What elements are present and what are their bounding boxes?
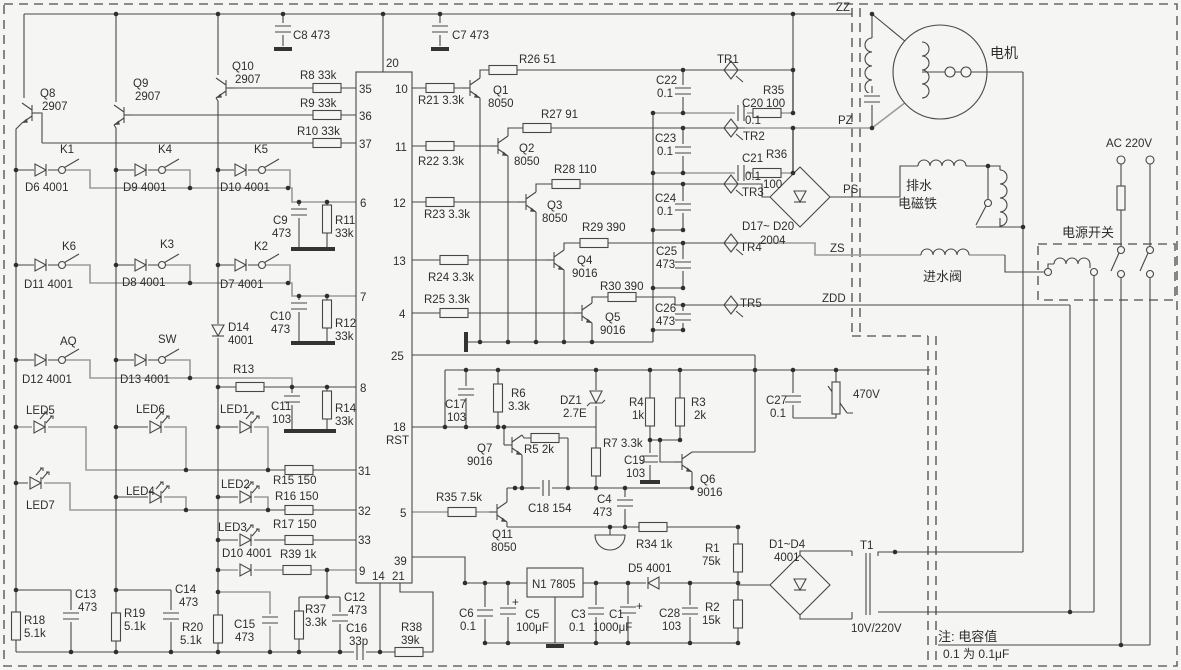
schematic-label: 9016 (572, 268, 598, 280)
schematic-label: 35 (359, 84, 372, 96)
schematic-label: K2 (254, 241, 268, 253)
schematic-label: + (512, 597, 519, 609)
schematic-label: 4001 (774, 552, 800, 564)
schematic-label: 2k (694, 410, 706, 422)
junction-dot (216, 168, 221, 173)
schematic-label: PS (843, 184, 859, 196)
transistor-q7 (504, 435, 522, 455)
schematic-label: K1 (60, 144, 74, 156)
junction-dot (651, 286, 656, 291)
schematic-label: C28 (659, 608, 680, 620)
schematic-label: LED7 (26, 500, 55, 512)
junction-dot (651, 171, 656, 176)
junction-dot (266, 468, 271, 473)
schematic-label: R37 (305, 604, 326, 616)
transistor-q1 (462, 78, 480, 98)
schematic-label: C22 (656, 75, 677, 87)
junction-dot (286, 186, 291, 191)
junction-dot (623, 525, 628, 530)
junction-dot (325, 200, 330, 205)
schematic-label: 13 (393, 256, 406, 268)
schematic-label: C8 473 (293, 30, 330, 42)
junction-dot (506, 641, 511, 646)
junction-dot (216, 590, 221, 595)
schematic-label: 6 (360, 198, 366, 210)
junction-dot (188, 376, 193, 381)
schematic-label: C12 (344, 592, 365, 604)
schematic-label: C24 (655, 193, 677, 205)
schematic-label: D14 (228, 322, 250, 334)
junction-dot (651, 328, 656, 333)
schematic-label: 470V (853, 389, 880, 401)
schematic-label: 10V/220V (851, 623, 902, 635)
junction-dot (681, 286, 686, 291)
schematic-label: C23 (655, 133, 676, 145)
schematic-label: D10 4001 (222, 548, 272, 560)
junction-dot (216, 568, 221, 573)
schematic-label: ZS (830, 243, 845, 255)
switch-sw (159, 349, 180, 364)
schematic-label: C9 (273, 215, 288, 227)
junction-dot (378, 650, 383, 655)
schematic-label: 4 (399, 309, 406, 321)
junction-dot (753, 368, 758, 373)
schematic-label: C16 (346, 623, 367, 635)
schematic-label: TR2 (743, 131, 765, 143)
schematic-label: K6 (62, 241, 76, 253)
schematic-label: 9 (359, 566, 365, 578)
schematic-label: 2907 (135, 91, 161, 103)
junction-dot (736, 641, 741, 646)
junction-dot (496, 368, 501, 373)
schematic-label: R15 150 (273, 475, 316, 487)
schematic-label: LED3 (218, 522, 247, 534)
schematic-label: D11 4001 (24, 279, 73, 291)
schematic-label: 39 (394, 556, 407, 568)
schematic-label: 电源开关 (1062, 225, 1114, 240)
junction-dot (14, 588, 19, 593)
schematic-label: C26 (655, 303, 676, 315)
schematic-label: Q5 (605, 312, 620, 324)
schematic-label: K5 (254, 144, 268, 156)
junction-dot (114, 12, 119, 17)
schematic-label: 0.1 (569, 622, 585, 634)
schematic-label: C15 (234, 619, 255, 631)
junction-dot (594, 368, 599, 373)
schematic-label: C13 (75, 589, 96, 601)
junction-dot (594, 581, 599, 586)
schematic-label: 8050 (542, 213, 568, 225)
junction-dot (286, 281, 291, 286)
schematic-label: R8 33k (300, 70, 337, 82)
schematic-label: 33p (349, 636, 368, 648)
schematic-label: 103 (447, 412, 466, 424)
switch-k4 (159, 159, 180, 174)
schematic-label: C20 (742, 98, 763, 110)
schematic-label: 1000μF (593, 622, 632, 634)
junction-dot (483, 581, 488, 586)
schematic-label: 2004 (760, 235, 786, 247)
schematic-label: 电磁铁 (898, 196, 937, 211)
schematic-label: 33k (335, 331, 354, 343)
schematic-label: R36 (766, 149, 787, 161)
junction-dot (791, 111, 796, 116)
junction-dot (184, 468, 189, 473)
schematic-label: 排水 (906, 178, 932, 193)
drain-solenoid-coil (918, 160, 966, 166)
buzzer (595, 535, 625, 550)
schematic-label: 电机 (990, 45, 1018, 61)
junction-dot (216, 495, 221, 500)
junction-dot (463, 581, 468, 586)
schematic-label: PZ (838, 115, 853, 127)
schematic-label: C19 (624, 455, 645, 467)
junction-dot (266, 508, 271, 513)
junction-dot (791, 126, 796, 131)
transistor-q6 (674, 452, 692, 472)
zener-dz1 (587, 390, 605, 406)
motor-start-winding (865, 38, 872, 94)
junction-dot (297, 650, 302, 655)
schematic-label: 31 (358, 466, 371, 478)
schematic-label: 103 (272, 414, 291, 426)
junction-dot (114, 650, 119, 655)
junction-dot (114, 588, 119, 593)
schematic-label: 36 (359, 111, 372, 123)
schematic-label: R22 3.3k (418, 156, 464, 168)
transistor-q4 (546, 250, 564, 270)
schematic-label: LED2 (221, 479, 250, 491)
junction-dot (14, 425, 19, 430)
schematic-label: Q7 (477, 443, 492, 455)
schematic-label: 14 (372, 571, 385, 583)
schematic-label: Q6 (700, 474, 715, 486)
schematic-label: Q11 (492, 529, 513, 541)
wires (16, 14, 1154, 652)
schematic-label: R18 (24, 615, 45, 627)
schematic-label: D7 4001 (220, 279, 263, 291)
schematic-label: C17 (445, 399, 466, 411)
schematic-label: 473 (348, 605, 367, 617)
schematic-label: 0.1 (770, 408, 786, 420)
schematic-label: 33 (358, 535, 371, 547)
schematic-label: Q10 (232, 61, 254, 73)
junction-dot (736, 525, 741, 530)
schematic-label: R39 1k (280, 549, 317, 561)
schematic-label: 9016 (697, 487, 723, 499)
schematic-label: TR1 (717, 54, 739, 66)
schematic-label: 7 (360, 292, 366, 304)
schematic-label: 103 (626, 468, 645, 480)
schematic-label: D10 4001 (220, 182, 270, 194)
fuse (1117, 186, 1125, 210)
junction-dot (114, 263, 119, 268)
junction-dot (188, 186, 193, 191)
junction-dot (483, 641, 488, 646)
schematic-label: R21 3.3k (418, 95, 464, 107)
schematic-label: 0.1 (745, 171, 761, 183)
schematic-label: 8050 (514, 156, 540, 168)
junction-dot (325, 294, 330, 299)
transistor-q9 (114, 105, 132, 125)
schematic-label: DZ1 (560, 395, 582, 407)
junction-dot (834, 368, 839, 373)
schematic-label: 103 (662, 621, 681, 633)
schematic-label: D8 4001 (122, 277, 165, 289)
junction-dot (791, 68, 796, 73)
junction-dot (534, 340, 539, 345)
schematic-label: 100 (766, 98, 785, 110)
schematic-label: RST (386, 435, 409, 447)
junction-dot (513, 486, 518, 491)
schematic-label: + (636, 601, 643, 613)
schematic-label: R20 (182, 622, 203, 634)
junction-dot (678, 368, 683, 373)
schematic-label: 25 (391, 351, 404, 363)
schematic-label: AC 220V (1106, 138, 1152, 150)
switch-k6 (59, 254, 80, 269)
junction-dot (290, 385, 295, 390)
schematic-label: TR5 (740, 298, 762, 310)
junction-dot (1021, 225, 1026, 230)
junction-dot (114, 358, 119, 363)
schematic-label: R23 3.3k (424, 209, 470, 221)
junction-dot (626, 581, 631, 586)
transistor-q10 (216, 78, 234, 98)
schematic-label: 5 (400, 508, 406, 520)
schematic-label: 0.1 (657, 146, 673, 158)
schematic-label: 20 (386, 58, 399, 70)
schematic-label: R28 110 (554, 164, 597, 176)
junction-dot (681, 228, 686, 233)
schematic-label: D13 4001 (120, 374, 170, 386)
junction-dot (496, 425, 501, 430)
junction-dot (681, 126, 686, 131)
junction-dot (325, 568, 330, 573)
schematic-label: 5.1k (24, 628, 46, 640)
schematic-label: 12 (393, 198, 406, 210)
schematic-label: Q2 (519, 143, 534, 155)
junction-dot (325, 385, 330, 390)
schematic-label: Q1 (493, 85, 508, 97)
schematic-label: Q3 (547, 200, 562, 212)
schematic-label: 18 (393, 422, 406, 434)
schematic-label: R34 1k (636, 539, 673, 551)
junction-dot (169, 650, 174, 655)
schematic-label: 21 (392, 571, 405, 583)
junction-dot (626, 641, 631, 646)
junction-dot (14, 481, 19, 486)
junction-dot (216, 385, 221, 390)
junction-dot (506, 340, 511, 345)
junction-dot (114, 495, 119, 500)
schematic-label: C21 (742, 153, 763, 165)
schematic-label: 8 (360, 383, 366, 395)
schematic-label: R16 150 (275, 491, 318, 503)
junction-dot (678, 438, 683, 443)
junction-dot (623, 486, 628, 491)
schematic-label: 2907 (42, 101, 68, 113)
junction-dot (893, 550, 898, 555)
schematic-label: R4 (629, 397, 644, 409)
schematic-label: 5.1k (124, 621, 146, 633)
junction-dot (648, 368, 653, 373)
schematic-label: 0.1 为 0.1μF (943, 647, 1009, 661)
schematic-label: R19 (124, 608, 145, 620)
schematic-label: 0.1 (745, 115, 761, 127)
schematic-label: ZZ (836, 2, 850, 14)
labels-layer: C8 473C7 47320R8 33kR9 33kR10 33kQ82907Q… (22, 2, 1152, 661)
schematic-label: LED1 (220, 404, 249, 416)
schematic-svg: C8 473C7 47320R8 33kR9 33kR10 33kQ82907Q… (0, 0, 1181, 670)
junction-dot (464, 368, 469, 373)
junction-dot (594, 641, 599, 646)
schematic-label: 9016 (600, 325, 626, 337)
schematic-label: R26 51 (519, 54, 556, 66)
junction-dot (297, 200, 302, 205)
bridge-d1-d4 (770, 555, 830, 615)
schematic-label: Q9 (133, 78, 148, 90)
junction-dot (188, 281, 193, 286)
junction-dot (690, 486, 695, 491)
junction-dot (438, 12, 443, 17)
transistor-q3 (518, 192, 536, 212)
junction-dot (216, 263, 221, 268)
junction-dot (14, 358, 19, 363)
schematic-label: C4 (597, 494, 612, 506)
junction-dot (297, 294, 302, 299)
junction-dot (590, 340, 595, 345)
triac-tr2 (717, 119, 745, 140)
schematic-label: 33k (335, 416, 354, 428)
schematic-label: 473 (656, 316, 675, 328)
schematic-label: D5 4001 (628, 563, 671, 575)
junction-dot (608, 525, 613, 530)
junction-dot (681, 241, 686, 246)
junction-dot (791, 368, 796, 373)
junction-dot (791, 171, 796, 176)
junction-dot (681, 68, 686, 73)
schematic-label: R6 (511, 388, 526, 400)
junction-dot (443, 425, 448, 430)
schematic-label: 100μF (516, 622, 549, 634)
schematic-label: 2.7E (563, 408, 587, 420)
schematic-label: 9016 (467, 456, 493, 468)
schematic-label: C5 (525, 609, 540, 621)
schematic-label: 37 (359, 139, 372, 151)
schematic-label: LED4 (126, 486, 155, 498)
schematic-label: R35 (763, 85, 784, 97)
schematic-label: 100 (763, 179, 782, 191)
junction-dot (681, 171, 686, 176)
schematic-label: C27 (766, 395, 787, 407)
schematic-label: R10 33k (297, 126, 340, 138)
schematic-label: D17~ D20 (742, 221, 794, 233)
switch-k5 (259, 159, 280, 174)
schematic-label: 8050 (491, 542, 517, 554)
schematic-label: 2907 (235, 74, 261, 86)
schematic-label: 11 (395, 142, 407, 154)
schematic-label: K3 (160, 239, 174, 251)
junction-dot (14, 168, 19, 173)
junction-dot (681, 111, 686, 116)
schematic-page: C8 473C7 47320R8 33kR9 33kR10 33kQ82907Q… (0, 0, 1181, 670)
schematic-label: 32 (358, 506, 371, 518)
schematic-label: R14 (335, 403, 357, 415)
transistor-q11 (489, 502, 507, 522)
schematic-label: C1 (609, 609, 624, 621)
junction-dot (478, 340, 483, 345)
transistor-q2 (490, 136, 508, 156)
junction-dot (325, 595, 330, 600)
switch-aq (59, 349, 80, 364)
schematic-label: LED5 (26, 405, 55, 417)
junction-dot (566, 486, 571, 491)
schematic-label: R38 (401, 622, 422, 634)
junction-dot (651, 111, 656, 116)
schematic-label: 473 (235, 632, 254, 644)
schematic-label: SW (158, 334, 177, 346)
junction-dot (648, 438, 653, 443)
schematic-label: ZDD (822, 293, 846, 305)
schematic-label: R9 33k (300, 98, 337, 110)
board-outline (4, 4, 1177, 666)
switch-k2 (259, 254, 280, 269)
junction-dot (14, 263, 19, 268)
schematic-label: 3.3k (508, 401, 530, 413)
schematic-label: 473 (593, 507, 612, 519)
junction-dot (114, 425, 119, 430)
schematic-label: 473 (272, 228, 291, 240)
junction-dot (216, 425, 221, 430)
schematic-label: 5.1k (180, 635, 202, 647)
switch-k1 (59, 159, 80, 174)
schematic-label: 473 (656, 259, 675, 271)
diode-d5 (646, 576, 660, 590)
schematic-label: C18 154 (528, 503, 572, 515)
junction-dot (184, 508, 189, 513)
schematic-label: 15k (702, 615, 721, 627)
switch-k3 (159, 254, 180, 269)
schematic-label: TR4 (740, 242, 762, 254)
schematic-label: R27 91 (541, 109, 578, 121)
junction-dot (464, 425, 469, 430)
schematic-label: 1k (632, 410, 644, 422)
schematic-label: C3 (571, 609, 586, 621)
schematic-label: 4001 (228, 335, 254, 347)
schematic-label: 473 (78, 602, 97, 614)
junction-dot (216, 650, 221, 655)
junction-dot (736, 581, 741, 586)
junction-dot (651, 228, 656, 233)
schematic-label: R7 3.3k (603, 438, 643, 450)
schematic-label: 473 (271, 324, 290, 336)
schematic-label: C6 (459, 608, 474, 620)
junction-dot (69, 650, 74, 655)
junction-dot (338, 650, 343, 655)
schematic-label: 473 (179, 597, 198, 609)
junction-dot (688, 641, 693, 646)
junction-dot (681, 182, 686, 187)
junction-dot (562, 340, 567, 345)
schematic-label: C10 (270, 311, 291, 323)
schematic-label: 进水阀 (923, 269, 962, 284)
junction-dot (520, 486, 525, 491)
schematic-label: K4 (158, 144, 173, 156)
schematic-label: D1~D4 (769, 539, 806, 551)
junction-dot (986, 164, 991, 169)
junction-dot (681, 328, 686, 333)
